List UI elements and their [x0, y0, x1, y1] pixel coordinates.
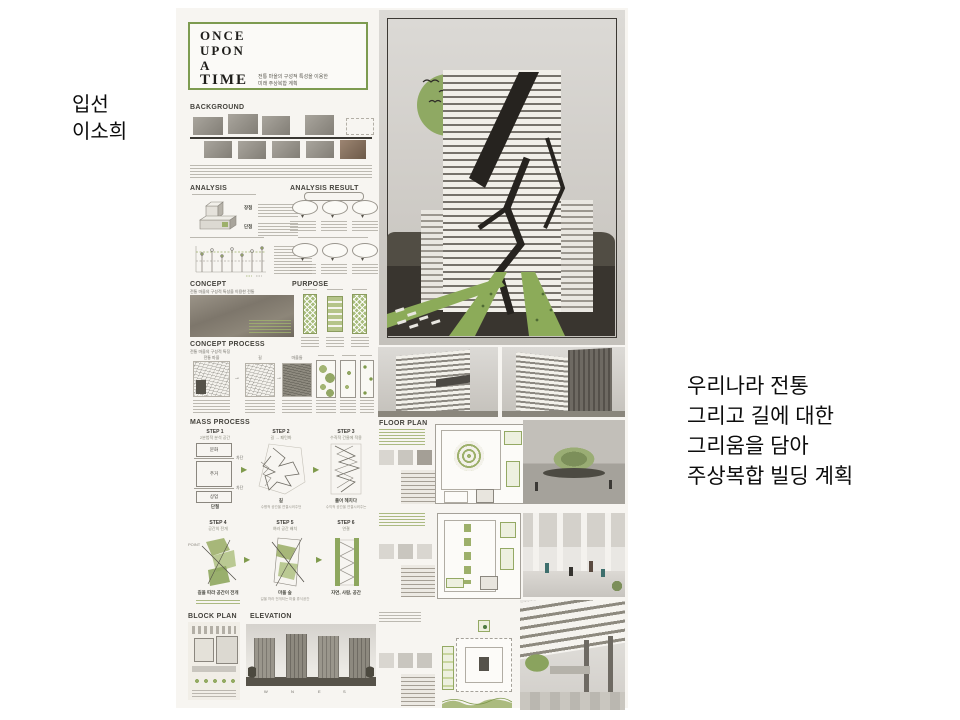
perspective-ground: [502, 411, 625, 417]
timeline-photo: [272, 141, 300, 158]
elevation-tree: [366, 664, 374, 680]
mass-step-sub: 길 → 패턴화: [250, 435, 312, 440]
material-swatch: [417, 544, 432, 559]
analysis-result-note: [290, 264, 316, 275]
slide-canvas: 입선 이소희 우리나라 전통 그리고 길에 대한 그리움을 담아 주상복합 빌딩…: [0, 0, 960, 720]
perspective-tower-dark: [568, 348, 612, 417]
section-heading-purpose: PURPOSE: [292, 280, 328, 289]
concept-photo-caption-lines: [249, 320, 291, 334]
material-swatch: [398, 450, 413, 465]
perspective-ground: [378, 411, 498, 417]
brick-texture: [401, 674, 435, 706]
lobby-column: [533, 513, 539, 573]
step1-barrier-line: [194, 458, 234, 459]
elevation-letter: W: [264, 689, 268, 694]
poster-title-line: ONCE: [200, 28, 248, 43]
section-heading-floor-plan: FLOOR PLAN: [379, 419, 428, 428]
material-swatch: [398, 653, 413, 668]
concept-aerial-photo: [190, 295, 294, 337]
person-figure: [601, 569, 605, 577]
award-label: 입선: [72, 92, 127, 119]
exterior-rendering-slabs: [520, 600, 625, 710]
section-heading-analysis: ANALYSIS: [190, 184, 227, 193]
plaza-paving: [520, 692, 625, 710]
analysis-result-circle: [352, 200, 378, 215]
analysis-line-chart: [190, 242, 270, 278]
floor-plan-drawing: [435, 424, 527, 504]
arrow-right-icon: ▶: [313, 466, 319, 474]
mass-step-sub: 연결: [315, 526, 377, 531]
section-heading-concept-process: CONCEPT PROCESS: [190, 340, 265, 349]
purpose-strip-note: [351, 337, 369, 347]
purpose-diagram-strip: [352, 294, 367, 334]
elevation-tree: [248, 664, 256, 680]
analysis-result-note: [290, 221, 316, 233]
concept-subtitle: 전통 마을의 구성적 특성을 이용한 전통: [190, 289, 300, 294]
plaza-step: [550, 666, 590, 674]
analysis-result-note: [321, 264, 347, 275]
step1-barrier-label: 차단: [236, 455, 243, 460]
section-heading-elevation: ELEVATION: [250, 612, 292, 621]
elevation-tower: [318, 636, 339, 678]
material-swatch: [417, 653, 432, 668]
material-swatch: [379, 653, 394, 668]
plan-core: [500, 522, 516, 538]
material-swatch: [398, 544, 413, 559]
interior-rendering-courtyard: [523, 420, 625, 504]
block-plan-row: [192, 626, 236, 634]
elevation-tower: [286, 634, 307, 678]
analysis-result-note: [321, 221, 347, 233]
caption-line: 주상복합 빌딩 계획: [687, 462, 853, 492]
step4-legend-lines: [196, 600, 240, 606]
plan-core-dark: [479, 657, 489, 671]
plan-green-spine: [464, 524, 471, 584]
analysis-cons-label: 단점: [244, 224, 256, 230]
mass-step-caption: 길: [255, 498, 307, 504]
elevation-letter: S: [343, 689, 346, 694]
step1-zone-box: 상업: [196, 491, 232, 503]
poster-title-line: A: [200, 58, 248, 73]
mass-step-sub: 공간의 전개: [187, 526, 249, 531]
canopy-column: [608, 636, 613, 700]
person-figure: [569, 567, 573, 576]
concept-process-panel-note: [316, 400, 336, 414]
floor-plan-drawing: [437, 513, 521, 599]
title-box: ONCE UPON A TIME 전통 마을의 구성적 특성을 이용한 미래 주…: [188, 22, 368, 90]
lobby-column: [557, 513, 563, 573]
concept-process-map-label: 마을들: [282, 355, 312, 360]
concept-process-panel-label: [342, 355, 356, 358]
person-figure: [535, 482, 538, 491]
mass-step-caption: 단절: [189, 504, 241, 510]
block-plan-building: [194, 638, 214, 662]
plan-core: [504, 431, 522, 445]
poster-subtitle: 전통 마을의 구성적 특성을 이용한 미래 주상복합 계획: [258, 74, 366, 87]
mass-step-note: 수직적 공간을 연결시켜주는: [315, 505, 377, 510]
arrow-right-icon: ▶: [241, 466, 247, 474]
arrow-down-icon: ▾: [361, 214, 364, 220]
purpose-diagram-strip: [303, 294, 317, 334]
timeline-photo: [340, 140, 366, 159]
arrow-down-icon: ▾: [331, 214, 334, 220]
timeline-photo: [193, 117, 223, 135]
concept-process-panel: [316, 360, 336, 398]
interior-rendering-lobby: [523, 513, 625, 597]
brick-texture: [401, 565, 435, 597]
mass-step-caption: 풀어 헤치다: [320, 498, 372, 504]
purpose-strip-label: [352, 289, 367, 292]
mass-step-sub: 여러 공간 배치: [254, 526, 316, 531]
greenery: [522, 652, 552, 674]
concept-process-subtitle: 전통 마을의 구성적 특징: [190, 349, 280, 354]
analysis-result-subheading-lines: [298, 237, 368, 240]
section-heading-background: BACKGROUND: [190, 103, 244, 112]
courtyard-planter: [543, 468, 605, 478]
mass-step-caption: 길을 따라 공간이 전개: [189, 590, 247, 596]
mass-step-sub: 2분법적 분석 공간: [184, 435, 246, 440]
timeline-photo: [238, 141, 266, 159]
step5-mass-diagram: [270, 536, 306, 588]
poster-title-line: TIME: [200, 73, 248, 88]
concept-process-map-label: 전통 마을: [193, 355, 230, 360]
elevation-letter: N: [291, 689, 294, 694]
analysis-bullet-lines: [190, 237, 264, 240]
mass-step-note: 길을 따라 전개되는 마을 휴식공간: [252, 597, 318, 602]
arrow-right-icon: ▶: [316, 556, 322, 564]
plan-room-outline: [444, 491, 468, 503]
analysis-axon-diagram: [192, 200, 242, 234]
material-swatch: [379, 450, 394, 465]
mass-step-sub: 수직적 건물에 적용: [315, 435, 377, 440]
brick-texture: [401, 470, 435, 504]
plan-core: [506, 461, 520, 487]
plan-core: [500, 548, 514, 570]
background-paragraph-lines: [190, 165, 372, 180]
concept-process-map-note: [245, 400, 275, 414]
step1-barrier-label: 차단: [236, 485, 243, 490]
analysis-result-note: [352, 264, 378, 275]
lobby-floor: [523, 571, 625, 597]
lobby-plant: [611, 579, 623, 593]
floor-plan-drawing: [456, 638, 512, 692]
perspective-tower: [516, 352, 568, 417]
floor-plan-notes: [379, 513, 425, 527]
concept-process-map-note: [193, 400, 230, 414]
concept-process-panel-label: [360, 355, 372, 358]
concept-process-panel: [360, 360, 374, 398]
block-plan-notes: [192, 690, 236, 697]
elevation-tower: [254, 638, 275, 678]
block-plan-road: [192, 666, 236, 672]
analysis-bullet-lines: [192, 194, 256, 197]
elevation-ground: [246, 677, 376, 686]
block-plan-building: [216, 636, 238, 664]
map-photo-fragment: [196, 380, 206, 394]
arrow-down-icon: ▾: [301, 214, 304, 220]
perspective-rendering-right: [502, 347, 625, 417]
mass-step-caption: 마을 숲: [259, 590, 311, 596]
concept-process-panel-note: [340, 400, 356, 414]
arrow-right-icon: ▶: [244, 556, 250, 564]
caption-line: 그리고 길에 대한: [687, 402, 853, 432]
concept-process-map: [282, 363, 312, 397]
step4-point-label: POINT: [188, 542, 200, 547]
lobby-column: [605, 513, 611, 573]
plan-stair-core: [480, 576, 498, 590]
purpose-strip-note: [326, 337, 344, 347]
floor-plan-notes: [379, 612, 421, 624]
timeline-photo: [228, 114, 258, 134]
section-heading-concept: CONCEPT: [190, 280, 226, 289]
elevation-image: [246, 624, 376, 686]
block-plan-trees: [192, 676, 236, 686]
plan-courtyard-circle: [454, 441, 484, 471]
plan-green-marker: [478, 620, 490, 632]
arrow-down-icon: ▾: [301, 257, 304, 263]
timeline-photo: [306, 141, 334, 158]
step1-zone-box: 주거: [196, 461, 232, 487]
section-heading-mass-process: MASS PROCESS: [190, 418, 250, 427]
analysis-result-circle: [292, 243, 318, 258]
step6-connection-diagram: [332, 536, 362, 588]
material-swatch: [417, 450, 432, 465]
analysis-result-note: [352, 221, 378, 233]
step2-road-sketch: [255, 442, 307, 496]
arrow-right-icon: →: [234, 375, 240, 381]
concept-process-map: [245, 363, 275, 397]
plan-green-strip: [442, 646, 454, 690]
person-figure: [545, 563, 549, 573]
analysis-result-circle: [322, 200, 348, 215]
timeline-line: [190, 137, 372, 139]
timeline-photo: [262, 116, 290, 135]
mass-step-caption: 자연, 사람, 공간: [315, 590, 377, 596]
person-figure: [609, 480, 612, 489]
arrow-down-icon: ▾: [331, 257, 334, 263]
block-plan-image: [188, 622, 240, 700]
arrow-down-icon: ▾: [361, 257, 364, 263]
caption-line: 그리움을 담아: [687, 432, 853, 462]
plan-landscape-wave: [442, 694, 512, 708]
timeline-photo: [204, 141, 232, 158]
poster-subtitle-line: 미래 주상복합 계획: [258, 81, 366, 88]
elevation-letter: E: [318, 689, 321, 694]
analysis-result-circle: [292, 200, 318, 215]
material-swatch: [379, 544, 394, 559]
step1-zone-box: 문화: [196, 443, 232, 457]
concept-process-panel-note: [360, 400, 374, 414]
purpose-strip-label: [327, 289, 343, 292]
mass-step-note: 수평적 공간을 연결시켜주던: [250, 505, 312, 510]
timeline-photo: [305, 115, 334, 135]
perspective-rendering-left: [378, 347, 498, 417]
analysis-pros-label: 장점: [244, 205, 256, 211]
poster-title-line: UPON: [200, 43, 248, 58]
timeline-placeholder: [346, 118, 374, 135]
caption-line: 우리나라 전통: [687, 372, 853, 402]
plan-stair-core: [476, 489, 494, 503]
caption-block: 우리나라 전통 그리고 길에 대한 그리움을 담아 주상복합 빌딩 계획: [687, 372, 853, 492]
concept-process-map-note: [282, 400, 312, 414]
section-heading-block-plan: BLOCK PLAN: [188, 612, 237, 621]
lobby-column: [581, 513, 587, 573]
concept-process-panel-label: [318, 355, 334, 358]
analysis-result-circle: [352, 243, 378, 258]
concept-process-panel: [340, 360, 356, 398]
poster-title: ONCE UPON A TIME: [200, 28, 248, 88]
main-rendering: [379, 10, 625, 345]
step3-vertical-sketch: [325, 442, 367, 496]
step4-mass-diagram: [200, 536, 240, 588]
award-block: 입선 이소희: [72, 92, 127, 146]
purpose-strip-label: [303, 289, 317, 292]
purpose-strip-note: [301, 337, 319, 347]
plan-core: [446, 578, 464, 588]
rendering-overlay: [387, 18, 615, 336]
concept-process-map: [193, 361, 230, 397]
author-name: 이소희: [72, 119, 127, 146]
person-figure: [589, 561, 593, 572]
analysis-result-circle: [322, 243, 348, 258]
poster-board: ONCE UPON A TIME 전통 마을의 구성적 특성을 이용한 미래 주…: [176, 8, 628, 708]
marker-dot: [483, 625, 487, 629]
concept-process-map-label: 길: [245, 355, 275, 360]
floor-plan-notes: [379, 429, 425, 445]
purpose-diagram-strip: [327, 296, 343, 332]
step1-barrier-line: [194, 488, 234, 489]
